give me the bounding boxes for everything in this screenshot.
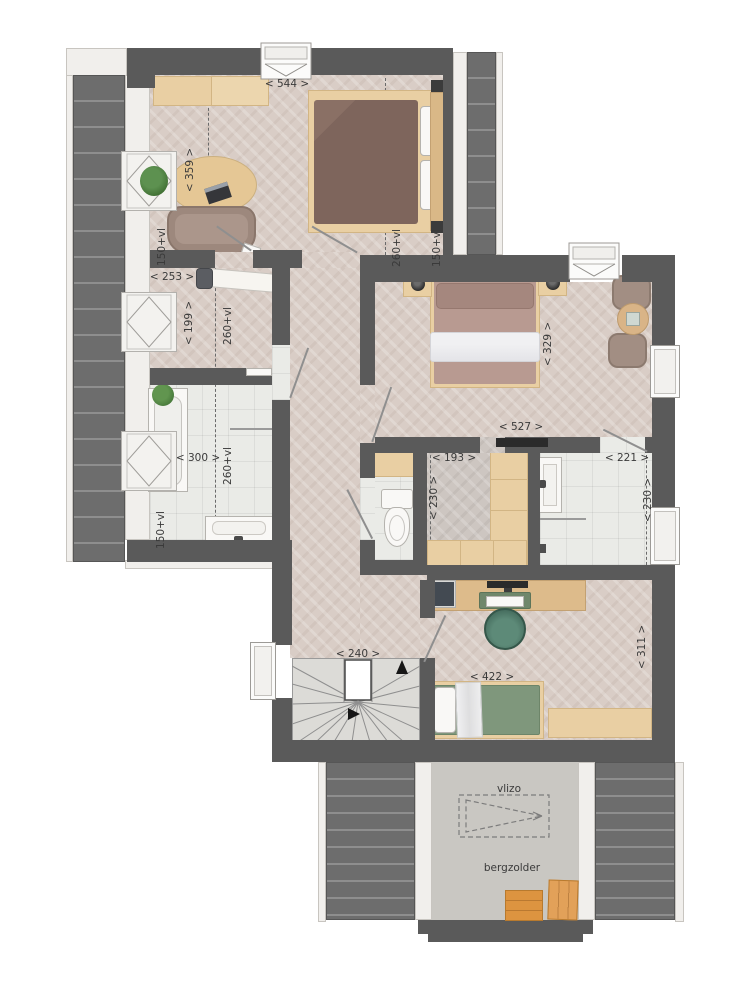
wall [528,443,540,565]
door-opening [272,345,290,400]
window [250,642,276,700]
dim-bedroom1-width: < 544 > [265,78,309,90]
dim-master-depth: < 329 > [542,322,554,366]
dim-bedroom3-width: < 422 > [470,671,514,683]
wall [272,268,290,345]
wall [652,398,675,507]
roof-right-wing [467,52,496,255]
wall [127,540,292,562]
wardrobe [153,76,269,106]
attic-hatch-outline [458,794,550,838]
staircase [292,658,420,742]
wall [375,437,480,453]
toilet-tank [381,489,413,509]
wall [272,400,290,560]
keyboard [486,596,524,607]
roof-left [73,75,125,562]
washbasin-bowl [212,521,266,535]
wall [272,740,675,762]
skylight [120,291,178,353]
monitor [487,581,528,588]
bed-blanket-master [430,332,540,362]
wall [272,698,292,742]
dim-master-width: < 527 > [499,421,543,433]
wall [420,580,435,618]
door-opening [215,252,253,268]
window [650,507,680,565]
plant [152,384,174,406]
armchair [608,333,647,368]
wall [652,282,675,345]
faucet [539,480,546,488]
height-bedroom1-right: 150+vl [431,229,443,267]
dim-bathroom2-depth: < 230 > [642,478,654,522]
wall [272,560,292,645]
sideboard [548,708,652,738]
shower-glass [230,428,272,430]
shower-glass [540,518,586,520]
wall [428,930,583,942]
label-storage-attic: bergzolder [484,862,540,874]
height-line [215,268,216,538]
roof-attic-left [326,762,415,920]
eave-attic-left-outer [318,762,326,922]
wall [420,658,435,742]
eave-top-corner [66,48,127,76]
window-pane [654,511,676,561]
tv [496,438,548,447]
window [650,345,680,398]
wall [622,255,675,282]
eave-attic-right [578,762,595,920]
height-bedroom1-left: 150+vl [156,228,168,266]
dormer-window [568,242,620,280]
plant [140,166,168,196]
wall [360,282,375,385]
wall [413,443,427,565]
height-bedroom1-mid: 260+vl [391,229,403,267]
storage-crate [547,879,578,920]
wall [360,443,375,478]
wardrobe-closet [490,448,528,542]
dim-laundry-width: < 253 > [150,271,194,283]
height-bathroom1: 260+vl [222,447,234,485]
dim-closet-width: < 193 > [432,452,476,464]
label-attic-hatch: vlizo [497,783,521,795]
bed-pillow [434,687,456,733]
magazine [626,312,640,326]
wall [360,560,427,575]
dormer-window [260,42,312,80]
window-pane [254,646,272,696]
dim-bedroom3-depth: < 311 > [636,625,648,669]
bed-pillows-master [436,283,534,309]
skylight [120,430,178,492]
window-pane [654,349,676,394]
dim-stairs-width: < 240 > [336,648,380,660]
eave-right-wing [453,52,467,255]
eave-attic-right-outer [675,762,684,922]
wall [652,565,675,740]
wall [253,250,302,268]
wall [427,565,652,580]
radiator [246,368,272,376]
floor-hallway [290,268,360,658]
eave-right-wing-outer [496,52,503,255]
door-opening [302,252,360,268]
height-laundry: 260+vl [222,307,234,345]
dim-laundry-depth: < 199 > [183,301,195,345]
dim-closet-depth: < 230 > [428,476,440,520]
roof-attic-right [595,762,675,920]
wall [127,75,155,88]
wall [443,48,453,268]
iron [196,268,213,289]
height-bathroom1-low: 150+vl [155,511,167,549]
dim-bathroom1-width: < 300 > [176,452,220,464]
dim-bathroom2-width: < 221 > [605,452,649,464]
desk-chair [484,608,526,650]
storage-crate [505,890,543,921]
dim-bedroom1-depth: < 359 > [184,148,196,192]
headboard [430,92,444,231]
bed-drape [455,682,483,739]
bed-duvet [314,100,418,224]
toilet-bowl [384,507,410,547]
eave-left-outer [66,75,73,562]
floor-plan: < 544 > < 359 > 150+vl 260+vl 150+vl < 2… [0,0,750,1000]
eave-attic-left [415,762,432,920]
toilet-seat [389,515,405,541]
magazine-cover [433,582,454,606]
